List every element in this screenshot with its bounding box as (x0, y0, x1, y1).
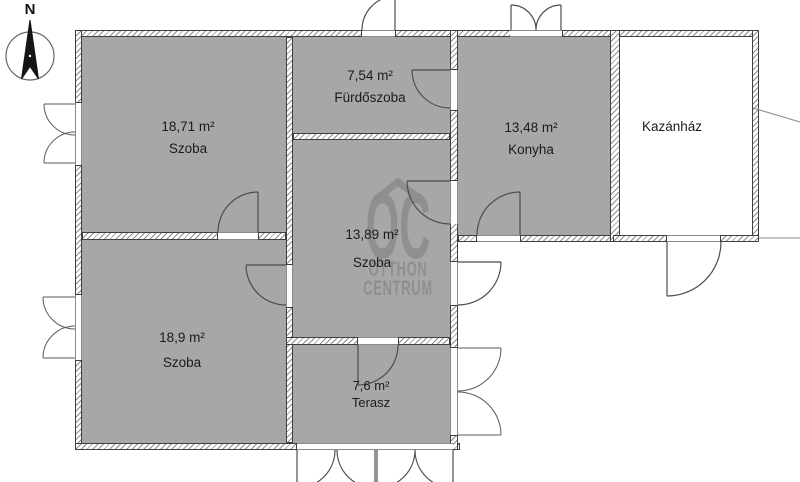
door-swing-icon (667, 242, 721, 296)
room-label-terasz: 7,6 m² Terasz (301, 377, 441, 411)
door-swing-icon (362, 0, 395, 30)
compass-north-label: N (0, 1, 60, 18)
door-swing-icon (458, 262, 501, 305)
door-swings (218, 0, 721, 482)
room-name: Szoba (118, 138, 258, 160)
room-name: Kazánház (602, 116, 742, 138)
room-label-furdoszoba: 7,54 m² Fürdőszoba (300, 65, 440, 109)
room-name: Terasz (301, 394, 441, 411)
double-door-swing-icon (377, 450, 453, 482)
room-label-konyha: 13,48 m² Konyha (461, 117, 601, 161)
floor-plan: OC OTTHON CENTRUM (0, 0, 800, 482)
room-area: 13,89 m² (302, 221, 442, 249)
room-area: 7,6 m² (301, 377, 441, 394)
room-area: 18,9 m² (112, 325, 252, 350)
room-label-szoba-sw: 18,9 m² Szoba (112, 325, 252, 375)
room-area: 13,48 m² (461, 117, 601, 139)
window-swing-icon (43, 297, 75, 358)
room-name: Szoba (302, 249, 442, 277)
double-door-swing-icon (511, 5, 561, 30)
window-swing-icon (44, 104, 75, 163)
door-swing-icon (218, 192, 258, 232)
watermark-roof-icon (376, 182, 420, 199)
room-area: 7,54 m² (300, 65, 440, 87)
room-name: Szoba (112, 350, 252, 375)
north-compass-icon (6, 20, 54, 80)
room-name: Fürdőszoba (300, 87, 440, 109)
room-area: 18,71 m² (118, 116, 258, 138)
door-swing-icon (407, 181, 450, 224)
room-label-kazanhaz: Kazánház (602, 116, 742, 138)
door-swing-icon (477, 192, 520, 235)
room-name: Konyha (461, 139, 601, 161)
room-label-szoba-center: 13,89 m² Szoba (302, 221, 442, 277)
boundary-line (753, 108, 800, 238)
door-swing-icon (246, 265, 286, 305)
room-label-szoba-nw: 18,71 m² Szoba (118, 116, 258, 160)
window-swing-icon (458, 348, 501, 435)
double-door-swing-icon (297, 450, 375, 482)
